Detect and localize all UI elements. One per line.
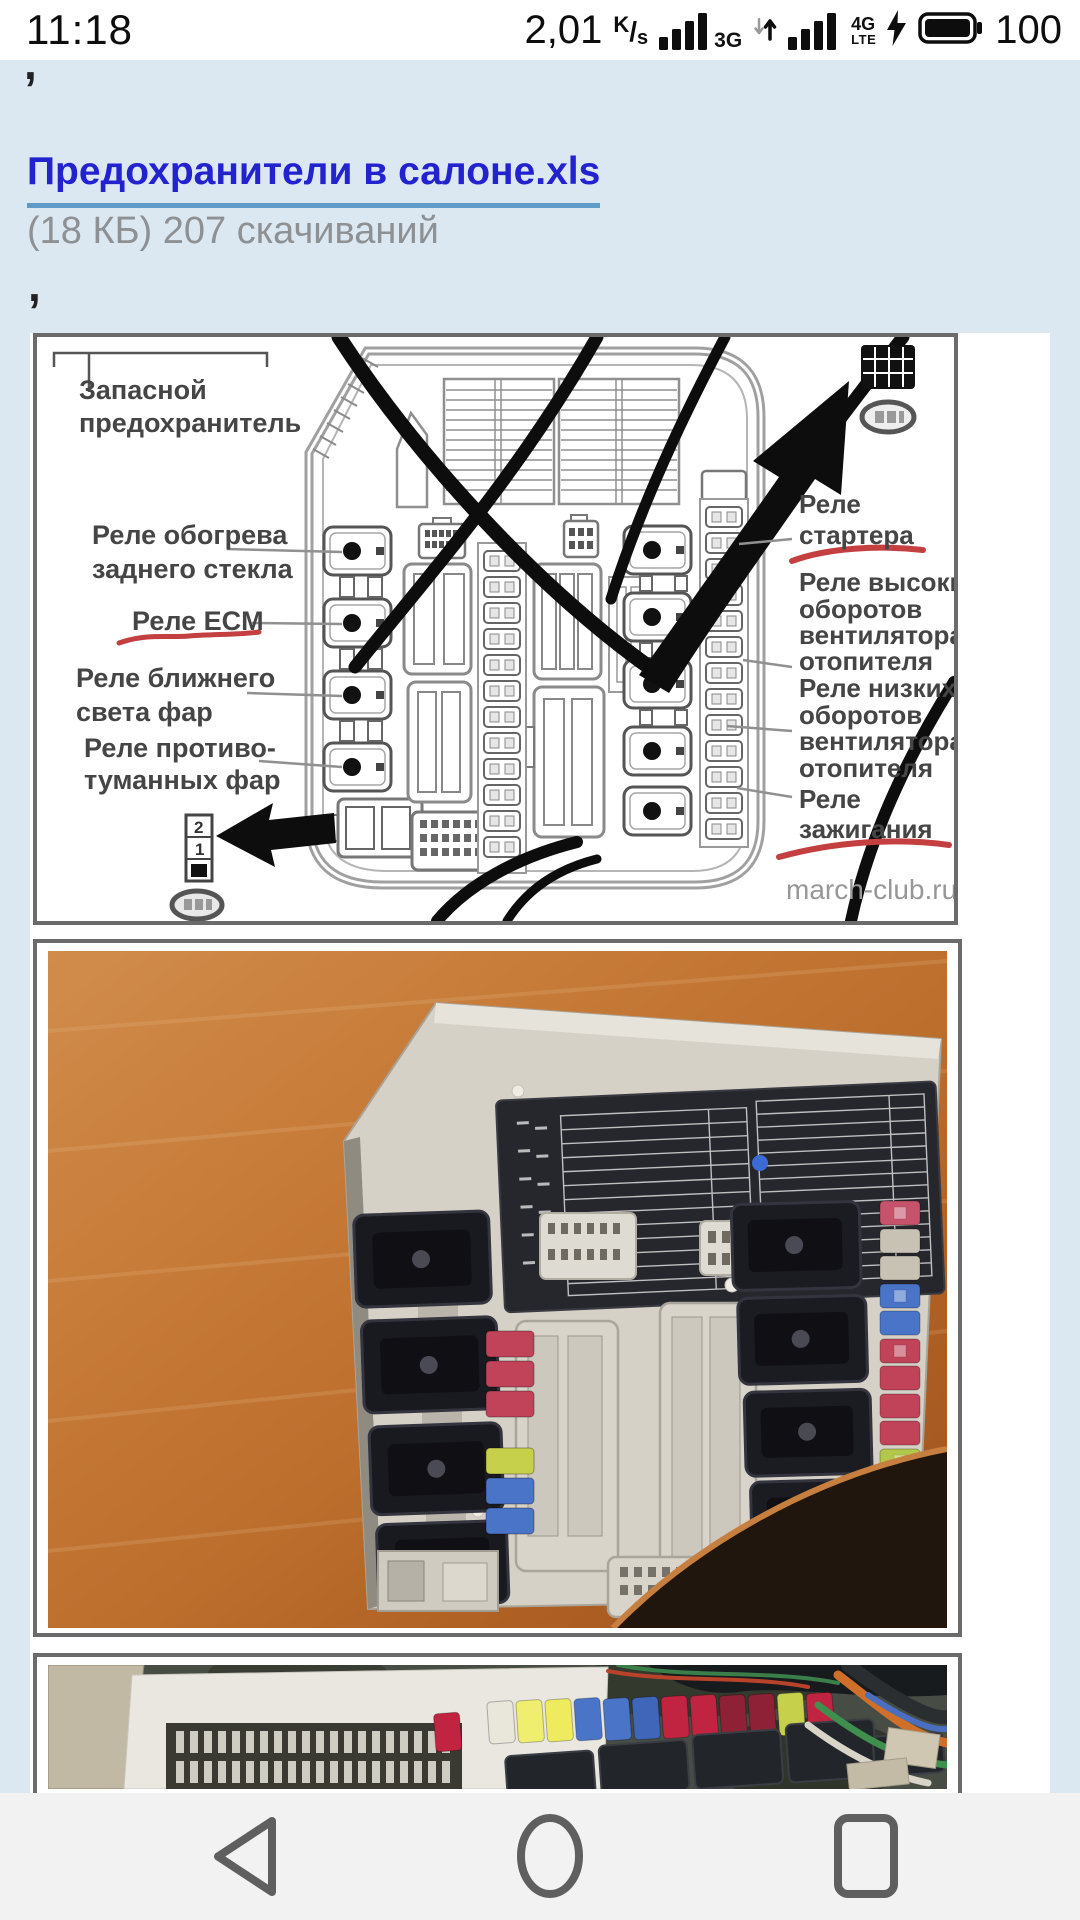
- android-navigation-bar: [0, 1793, 1080, 1920]
- fuse-diagram-image[interactable]: 2 1 Запасной предохр: [33, 333, 958, 925]
- label-fog-1: Реле противо-: [84, 733, 276, 763]
- sim2-network-type: 4G LTE: [851, 15, 876, 46]
- label-ecm: Реле ECM: [132, 606, 264, 636]
- fuse-strip-right: [700, 471, 748, 847]
- watermark: march-club.ru: [786, 874, 954, 905]
- label-fog-2: туманных фар: [84, 765, 281, 795]
- label-spare-fuse-2: предохранитель: [79, 408, 301, 438]
- phone-screen: 11:18 2,01 K/s 3G 4G LTE: [0, 0, 1080, 1920]
- label-low-beam-1: Реле ближнего: [76, 663, 275, 693]
- fusebox-installed-photo-svg: [48, 1665, 947, 1789]
- label-ignition-2: зажигания: [799, 814, 933, 844]
- battery-percent: 100: [995, 8, 1062, 53]
- pin-2-label: 2: [194, 818, 203, 837]
- connector-callout-icon: [861, 345, 915, 432]
- label-starter-1: Реле: [799, 489, 861, 519]
- sim1-network-type: 3G: [714, 29, 742, 53]
- post-text-fragment-top: ,: [24, 40, 37, 86]
- label-rear-window-2: заднего стекла: [92, 554, 294, 584]
- charging-bolt-icon: [887, 10, 907, 51]
- recent-apps-button-icon[interactable]: [838, 1818, 894, 1894]
- label-fan-low-3: вентилятора: [799, 726, 954, 756]
- fusebox-installed-photo-image[interactable]: [33, 1653, 962, 1793]
- fuse-diagram-svg: 2 1 Запасной предохр: [37, 337, 954, 921]
- fusebox-photo-svg: [48, 951, 947, 1628]
- label-low-beam-2: света фар: [76, 697, 213, 727]
- status-bar: 11:18 2,01 K/s 3G 4G LTE: [0, 0, 1080, 60]
- label-fan-low-1: Реле низких: [799, 673, 954, 703]
- label-fan-low-4: отопителя: [799, 753, 933, 783]
- attachment-file-link[interactable]: Предохранители в салоне.xls: [27, 150, 600, 208]
- label-spare-fuse-1: Запасной: [79, 375, 207, 405]
- pin-1-label: 1: [195, 840, 204, 859]
- battery-icon: [918, 10, 984, 51]
- attachment-meta: (18 КБ) 207 скачиваний: [27, 210, 439, 253]
- home-button-icon[interactable]: [521, 1818, 579, 1894]
- signal-bars-sim2-icon: [788, 10, 840, 50]
- signal-bars-sim1-icon: 3G: [659, 10, 742, 50]
- status-bar-right-cluster: 2,01 K/s 3G 4G LTE 100: [524, 8, 1062, 53]
- back-button-icon[interactable]: [218, 1821, 272, 1892]
- label-rear-window-1: Реле обогрева: [92, 520, 288, 550]
- fuse-strip-middle: [478, 543, 526, 873]
- fusebox-photo-image[interactable]: [33, 939, 962, 1637]
- clock: 11:18: [26, 6, 133, 54]
- label-ignition-1: Реле: [799, 784, 861, 814]
- post-text-fragment-bottom: ,: [28, 262, 41, 308]
- network-speed-value: 2,01: [524, 8, 602, 53]
- data-activity-arrows-icon: [753, 11, 777, 50]
- label-fan-high-4: отопителя: [799, 646, 933, 676]
- label-starter-2: стартера: [799, 520, 914, 550]
- blue-dot: [752, 1155, 768, 1171]
- network-speed-unit: K/s: [613, 16, 648, 44]
- label-fan-high-1: Реле высоких: [799, 567, 954, 597]
